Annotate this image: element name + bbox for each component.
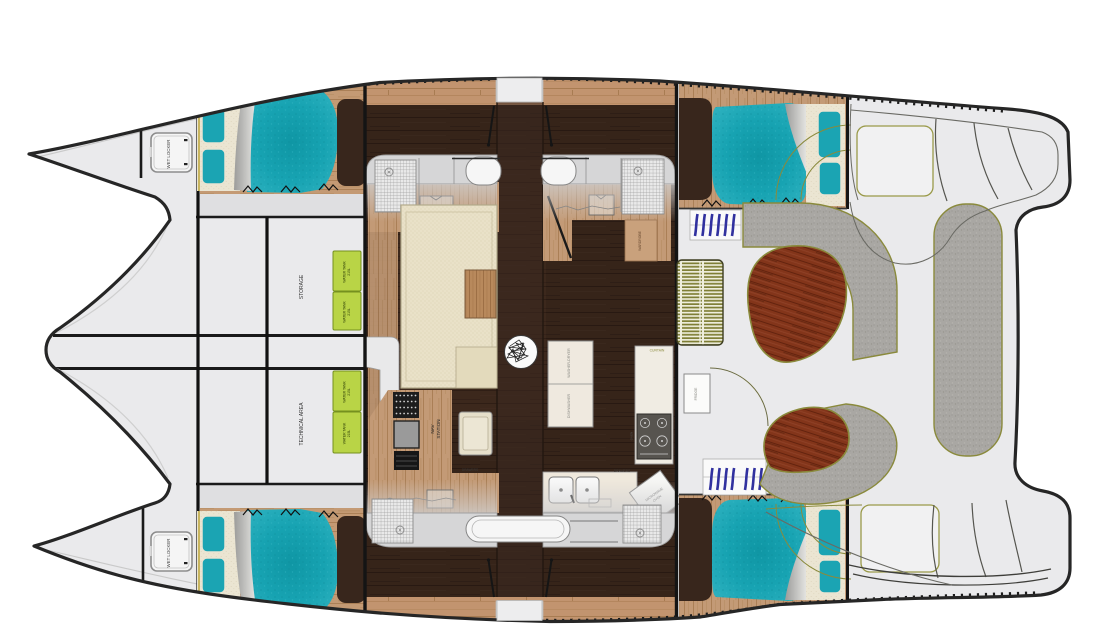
svg-text:WATER TANK: WATER TANK xyxy=(343,260,347,282)
svg-text:WATER TANK: WATER TANK xyxy=(343,422,347,444)
svg-text:STORAGE: STORAGE xyxy=(299,274,305,299)
svg-text:215L: 215L xyxy=(347,388,351,396)
svg-text:DRAWERS: DRAWERS xyxy=(614,469,630,473)
svg-text:CURTAIN: CURTAIN xyxy=(650,349,665,353)
svg-text:WET LOCKER: WET LOCKER xyxy=(166,140,171,169)
svg-text:OVEN: OVEN xyxy=(630,432,634,441)
svg-text:WASHER-DRYER: WASHER-DRYER xyxy=(567,348,571,378)
svg-text:TECHNICAL AREA: TECHNICAL AREA xyxy=(299,402,305,446)
svg-text:FRIDGE: FRIDGE xyxy=(694,387,698,401)
svg-text:STATION: STATION xyxy=(436,419,441,438)
svg-text:215L: 215L xyxy=(347,268,351,276)
svg-text:WATER TANK: WATER TANK xyxy=(343,380,347,402)
svg-text:DISHWASHER: DISHWASHER xyxy=(567,393,571,418)
svg-text:WET LOCKER: WET LOCKER xyxy=(166,539,171,568)
svg-text:WATER TANK: WATER TANK xyxy=(343,300,347,322)
svg-text:WARDROBE: WARDROBE xyxy=(638,230,642,251)
svg-text:215L: 215L xyxy=(347,308,351,316)
svg-text:215L: 215L xyxy=(347,430,351,438)
svg-text:DRAWERS: DRAWERS xyxy=(462,468,478,472)
svg-text:NAV: NAV xyxy=(430,424,435,434)
